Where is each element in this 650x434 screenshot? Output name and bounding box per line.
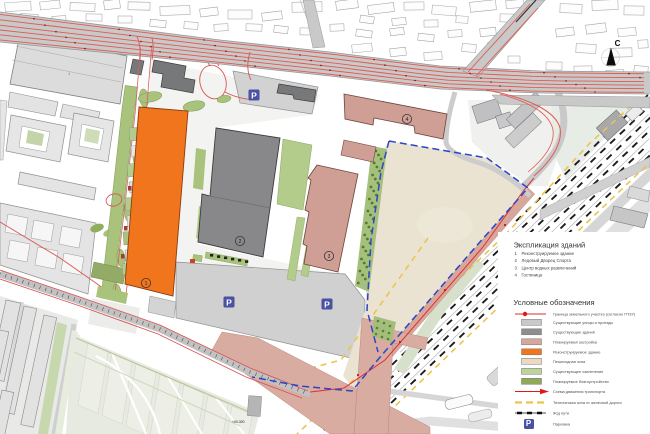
svg-text:P: P — [251, 91, 257, 101]
svg-text:P: P — [226, 298, 232, 308]
svg-text:Граница земельного участка (со: Граница земельного участка (согласно ГПЗ… — [553, 311, 636, 316]
svg-text:Гостиница: Гостиница — [522, 273, 543, 278]
svg-text:С: С — [615, 39, 621, 48]
svg-text:+60-300: +60-300 — [232, 420, 245, 424]
svg-text:2: 2 — [239, 239, 242, 245]
svg-text:Схема движения транспорта: Схема движения транспорта — [553, 389, 606, 394]
svg-text:P: P — [324, 300, 330, 310]
svg-text:Ж/д пути: Ж/д пути — [553, 410, 569, 415]
svg-text:Планируемая застройка: Планируемая застройка — [553, 339, 598, 344]
svg-text:Условные обозначения: Условные обозначения — [514, 298, 595, 307]
svg-text:Существующие здания: Существующие здания — [553, 329, 595, 334]
svg-text:Парковка: Парковка — [553, 421, 571, 426]
svg-text:Существующее озеленение: Существующее озеленение — [553, 369, 603, 374]
svg-text:Реконструируемое здание: Реконструируемое здание — [553, 349, 601, 354]
svg-text:Пешеходная зона: Пешеходная зона — [553, 359, 586, 364]
svg-text:1: 1 — [145, 281, 148, 287]
svg-text:3: 3 — [328, 254, 331, 260]
svg-text:Экспликация зданий: Экспликация зданий — [514, 241, 586, 250]
svg-text:Существующие улицы и проезды: Существующие улицы и проезды — [553, 320, 613, 325]
svg-text:Техническая зона от железной д: Техническая зона от железной дороги — [553, 400, 622, 405]
svg-text:Реконструируемое здание: Реконструируемое здание — [522, 251, 575, 256]
svg-text:Планируемое благоустройство: Планируемое благоустройство — [553, 379, 609, 384]
svg-text:4: 4 — [406, 117, 409, 123]
svg-text:P: P — [526, 419, 532, 428]
svg-text:Ледовый Дворец Спорта: Ледовый Дворец Спорта — [522, 258, 572, 263]
svg-text:Центр водных развлечений: Центр водных развлечений — [522, 265, 577, 270]
